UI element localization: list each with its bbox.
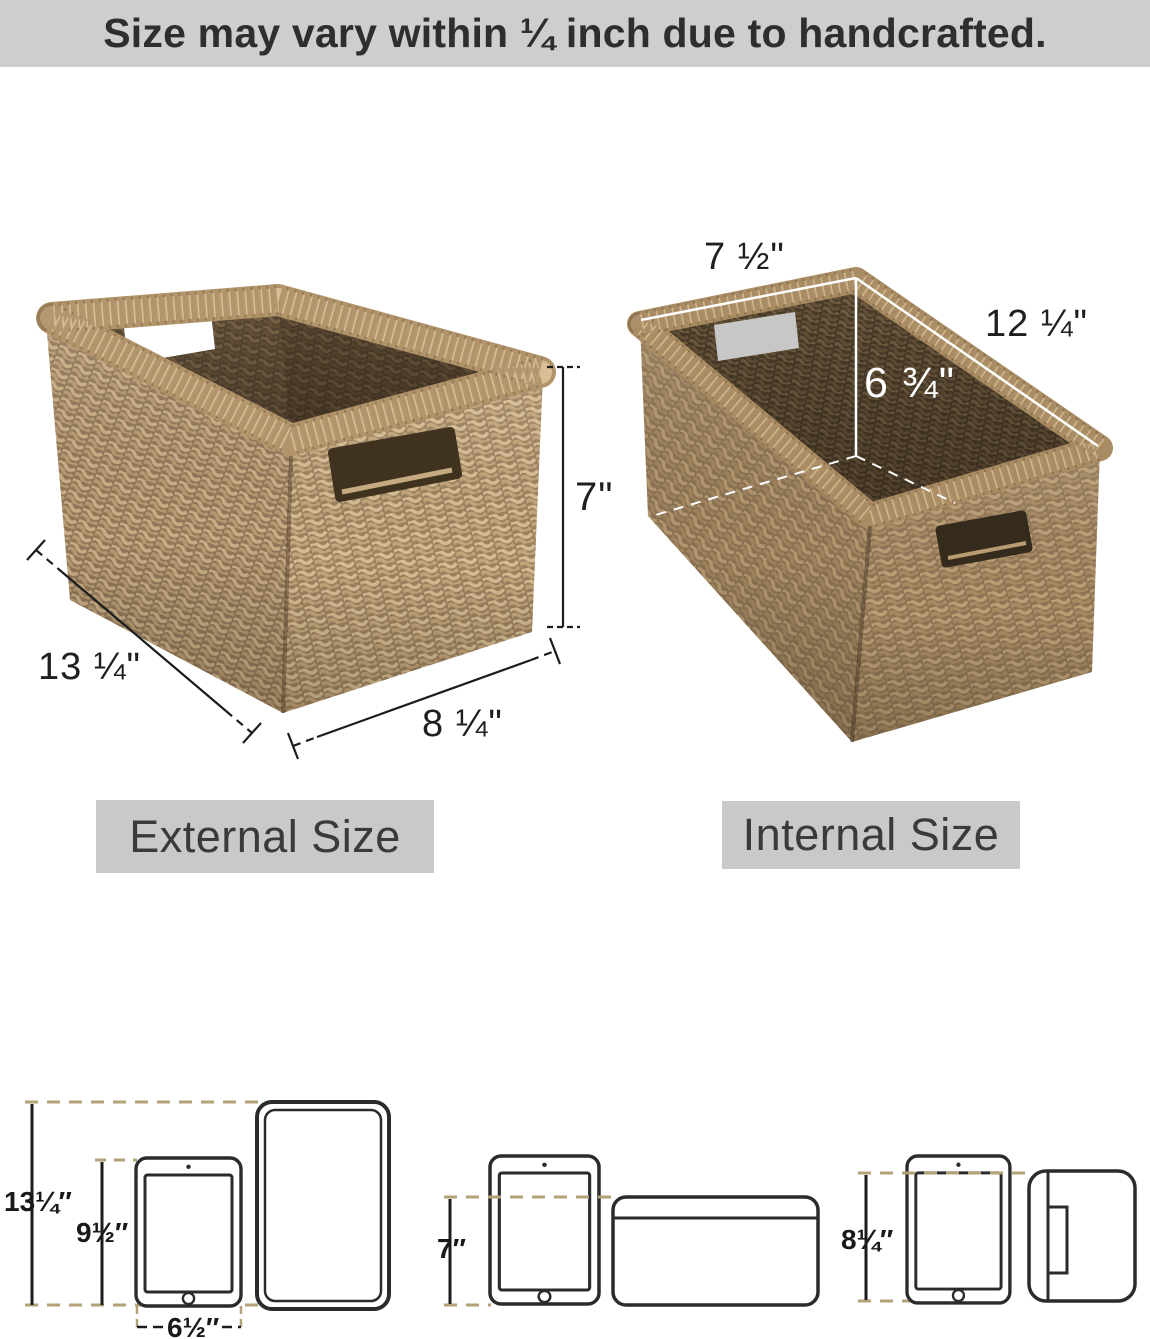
internal-size-label: Internal Size — [722, 801, 1020, 869]
external-height-dim: 7" — [575, 477, 613, 517]
tablet-outline-icon — [490, 1156, 599, 1304]
comparison-basket-height-left: 13¼″ — [4, 1188, 72, 1216]
internal-basket-photo — [640, 280, 1100, 742]
internal-length-dim: 12 ¼" — [985, 305, 1088, 343]
basket-side-outline — [613, 1197, 818, 1305]
comparison-tablet-height-left: 9½″ — [76, 1219, 128, 1247]
tablet-outline-icon — [907, 1156, 1010, 1303]
basket-end-outline — [1029, 1171, 1135, 1301]
comparison-left — [25, 1102, 389, 1330]
external-size-label: External Size — [96, 800, 434, 873]
basket-front-outline — [257, 1102, 389, 1309]
external-width-dim: 8 ¼" — [422, 705, 503, 743]
product-dimension-infographic: Size may vary within ¼ inch due to handc… — [0, 0, 1150, 1339]
tablet-outline-icon — [136, 1158, 241, 1306]
comparison-basket-height-right: 8¼″ — [841, 1226, 893, 1254]
internal-width-dim: 7 ½" — [704, 238, 785, 276]
comparison-basket-height-middle: 7″ — [437, 1235, 466, 1263]
internal-height-dim: 6 ¾" — [864, 362, 955, 405]
external-length-dim: 13 ¼" — [38, 648, 141, 686]
dimension-artwork — [0, 0, 1150, 1339]
comparison-middle — [444, 1156, 818, 1305]
comparison-tablet-width-left: 6½″ — [167, 1314, 219, 1339]
comparison-right — [858, 1156, 1135, 1303]
internal-size-label-text: Internal Size — [743, 809, 1000, 861]
external-size-label-text: External Size — [129, 811, 401, 863]
